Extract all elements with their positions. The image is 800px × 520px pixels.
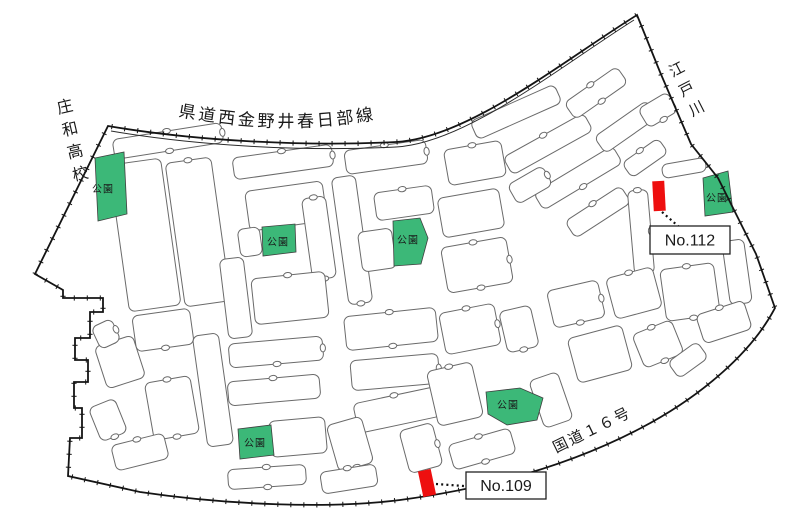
park-label: 公園 (267, 237, 289, 249)
street-block (88, 398, 128, 444)
street-block-outline (144, 375, 199, 440)
street-block (605, 264, 663, 320)
street-block (132, 308, 195, 354)
street-block-outline (251, 271, 329, 324)
map-svg: 公園公園公園公園公園公園県道西金野井春日部線庄和高校江戸川国道１６号No.112… (0, 0, 800, 520)
park-label: 公園 (397, 235, 419, 247)
marker-leader-line (436, 484, 464, 486)
corner-bump-icon (273, 361, 281, 367)
street-block-outline (564, 66, 628, 119)
street-block-outline (219, 257, 253, 339)
street-block (440, 234, 516, 296)
marker-label-text: No.112 (665, 233, 716, 250)
corner-bump-icon (283, 272, 291, 278)
street-block (228, 336, 327, 371)
street-block-outline (567, 325, 633, 384)
corner-bump-icon (219, 128, 225, 137)
street-block-outline (399, 422, 443, 473)
street-block-outline (88, 398, 127, 442)
site-marker-no112[interactable] (652, 181, 666, 212)
corner-bump-icon (633, 187, 641, 193)
street-block-outline (499, 305, 540, 353)
street-block-outline (661, 157, 707, 178)
city-planning-map: 公園公園公園公園公園公園県道西金野井春日部線庄和高校江戸川国道１６号No.112… (0, 0, 800, 520)
street-block (319, 461, 378, 494)
corner-bump-icon (343, 465, 352, 471)
street-block-outline (350, 353, 440, 391)
street-block (438, 300, 504, 355)
street-block-outline (441, 237, 514, 294)
street-block (620, 136, 668, 178)
street-block (399, 422, 446, 474)
street-block (269, 417, 328, 458)
street-block (227, 371, 321, 406)
corner-bump-icon (161, 345, 170, 351)
corner-bump-icon (277, 148, 286, 154)
street-block (357, 228, 396, 272)
park-label: 公園 (92, 184, 114, 196)
site-marker-no109[interactable] (418, 469, 436, 497)
street-block (112, 120, 227, 163)
street-block-outline (622, 138, 668, 178)
street-block (144, 373, 200, 443)
street-block (447, 425, 517, 473)
street-block-outline (269, 417, 328, 458)
street-block (373, 183, 435, 221)
street-block (567, 325, 633, 384)
street-block (219, 257, 253, 339)
corner-bump-icon (357, 300, 366, 306)
street-block-outline (357, 228, 396, 272)
street-block (251, 269, 330, 325)
street-block-outline (605, 267, 662, 320)
street-block-outline (546, 280, 605, 329)
street-block (563, 64, 630, 121)
street-block (343, 305, 439, 354)
park-label: 公園 (244, 438, 266, 450)
svg-text:庄和高校: 庄和高校 (55, 97, 90, 185)
corner-bump-icon (184, 157, 193, 163)
street-block-outline (565, 186, 631, 239)
corner-bump-icon (165, 148, 174, 154)
street-block (237, 227, 263, 258)
corner-bump-icon (423, 147, 429, 156)
marker-label-text: No.109 (480, 478, 532, 495)
corner-bump-icon (309, 194, 318, 200)
street-block-outline (301, 196, 336, 281)
corner-bump-icon (262, 464, 270, 470)
street-block (546, 279, 608, 331)
street-block-outline (439, 303, 502, 355)
street-block-outline (237, 227, 263, 258)
corner-bump-icon (269, 375, 277, 381)
map-page: 公園公園公園公園公園公園県道西金野井春日部線庄和高校江戸川国道１６号No.112… (0, 0, 800, 520)
street-block (499, 305, 540, 356)
street-block (437, 188, 505, 238)
park-label: 公園 (497, 400, 519, 412)
high-school-label: 庄和高校 (55, 97, 90, 185)
corner-bump-icon (389, 343, 397, 349)
corner-bump-icon (398, 186, 407, 192)
street-blocks-layer (88, 64, 752, 494)
street-block (661, 157, 707, 178)
corner-bump-icon (689, 315, 698, 321)
street-block (443, 138, 507, 186)
corner-bump-icon (682, 263, 691, 269)
street-block (232, 141, 337, 180)
corner-bump-icon (329, 151, 335, 160)
corner-bump-icon (320, 344, 326, 352)
street-block-outline (437, 188, 505, 238)
corner-bump-icon (385, 309, 393, 315)
park-label: 公園 (706, 193, 728, 205)
corner-bump-icon (264, 484, 272, 490)
street-block (227, 462, 307, 493)
street-block (301, 193, 337, 283)
